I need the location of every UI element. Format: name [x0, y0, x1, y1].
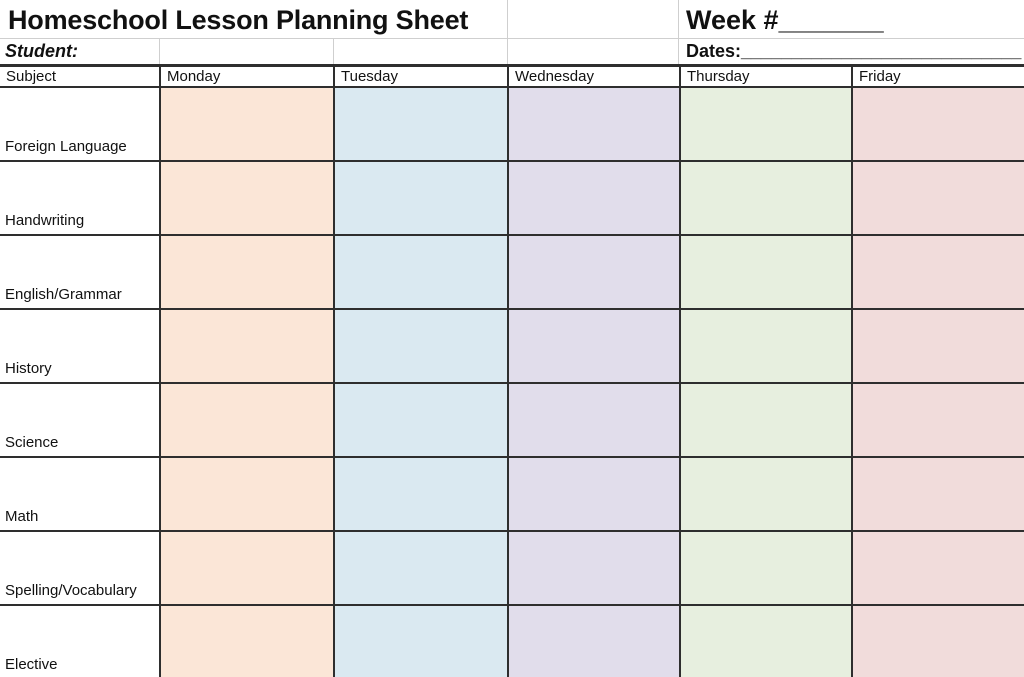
- lesson-cell[interactable]: [679, 532, 851, 606]
- lesson-cell[interactable]: [851, 162, 1024, 236]
- lesson-cell[interactable]: [333, 384, 507, 458]
- lesson-planning-sheet: Homeschool Lesson Planning Sheet Week #_…: [0, 0, 1024, 677]
- lesson-cell[interactable]: [679, 606, 851, 677]
- lesson-cell[interactable]: [159, 88, 333, 162]
- lesson-cell[interactable]: [851, 458, 1024, 532]
- lesson-cell[interactable]: [507, 458, 679, 532]
- lesson-cell[interactable]: [159, 458, 333, 532]
- lesson-cell[interactable]: [679, 384, 851, 458]
- column-header-tuesday: Tuesday: [333, 64, 507, 88]
- lesson-cell[interactable]: [507, 606, 679, 677]
- week-number-field[interactable]: Week #_______: [686, 0, 884, 38]
- lesson-cell[interactable]: [159, 532, 333, 606]
- subject-label: Foreign Language: [0, 88, 159, 162]
- lesson-cell[interactable]: [333, 532, 507, 606]
- lesson-cell[interactable]: [851, 384, 1024, 458]
- lesson-cell[interactable]: [159, 310, 333, 384]
- column-header-wednesday: Wednesday: [507, 64, 679, 88]
- week-blank-line[interactable]: _______: [779, 5, 884, 35]
- lesson-cell[interactable]: [333, 162, 507, 236]
- week-label: Week #: [686, 5, 779, 35]
- lesson-cell[interactable]: [507, 532, 679, 606]
- lesson-cell[interactable]: [159, 162, 333, 236]
- lesson-cell[interactable]: [507, 310, 679, 384]
- dates-label: Dates:: [686, 41, 741, 61]
- lesson-cell[interactable]: [159, 384, 333, 458]
- lesson-cell[interactable]: [333, 88, 507, 162]
- column-header-monday: Monday: [159, 64, 333, 88]
- planner-table: Subject Monday Tuesday Wednesday Thursda…: [0, 64, 1024, 677]
- subject-label: Handwriting: [0, 162, 159, 236]
- subject-label: Spelling/Vocabulary: [0, 532, 159, 606]
- lesson-cell[interactable]: [679, 310, 851, 384]
- lesson-cell[interactable]: [851, 310, 1024, 384]
- gridline-vertical: [678, 0, 679, 64]
- lesson-cell[interactable]: [333, 310, 507, 384]
- column-header-thursday: Thursday: [679, 64, 851, 88]
- lesson-cell[interactable]: [159, 606, 333, 677]
- lesson-cell[interactable]: [159, 236, 333, 310]
- lesson-cell[interactable]: [851, 236, 1024, 310]
- column-header-subject: Subject: [0, 64, 159, 88]
- lesson-cell[interactable]: [679, 458, 851, 532]
- lesson-cell[interactable]: [507, 384, 679, 458]
- subject-label: History: [0, 310, 159, 384]
- subject-label: Science: [0, 384, 159, 458]
- dates-blank-line[interactable]: ____________________________: [741, 41, 1021, 61]
- lesson-cell[interactable]: [679, 162, 851, 236]
- subject-label: Math: [0, 458, 159, 532]
- lesson-cell[interactable]: [851, 88, 1024, 162]
- lesson-cell[interactable]: [679, 88, 851, 162]
- lesson-cell[interactable]: [851, 532, 1024, 606]
- subject-label: English/Grammar: [0, 236, 159, 310]
- column-header-friday: Friday: [851, 64, 1024, 88]
- gridline-horizontal: [0, 38, 1024, 39]
- lesson-cell[interactable]: [851, 606, 1024, 677]
- dates-field[interactable]: Dates:____________________________: [686, 38, 1021, 64]
- lesson-cell[interactable]: [333, 458, 507, 532]
- gridline-vertical: [507, 0, 508, 64]
- gridline-vertical: [333, 38, 334, 64]
- subject-label: Elective: [0, 606, 159, 677]
- lesson-cell[interactable]: [507, 236, 679, 310]
- lesson-cell[interactable]: [333, 606, 507, 677]
- lesson-cell[interactable]: [507, 88, 679, 162]
- student-name-field[interactable]: Student:: [5, 38, 78, 64]
- lesson-cell[interactable]: [507, 162, 679, 236]
- page-title: Homeschool Lesson Planning Sheet: [8, 0, 468, 38]
- lesson-cell[interactable]: [333, 236, 507, 310]
- lesson-cell[interactable]: [679, 236, 851, 310]
- gridline-vertical: [159, 38, 160, 64]
